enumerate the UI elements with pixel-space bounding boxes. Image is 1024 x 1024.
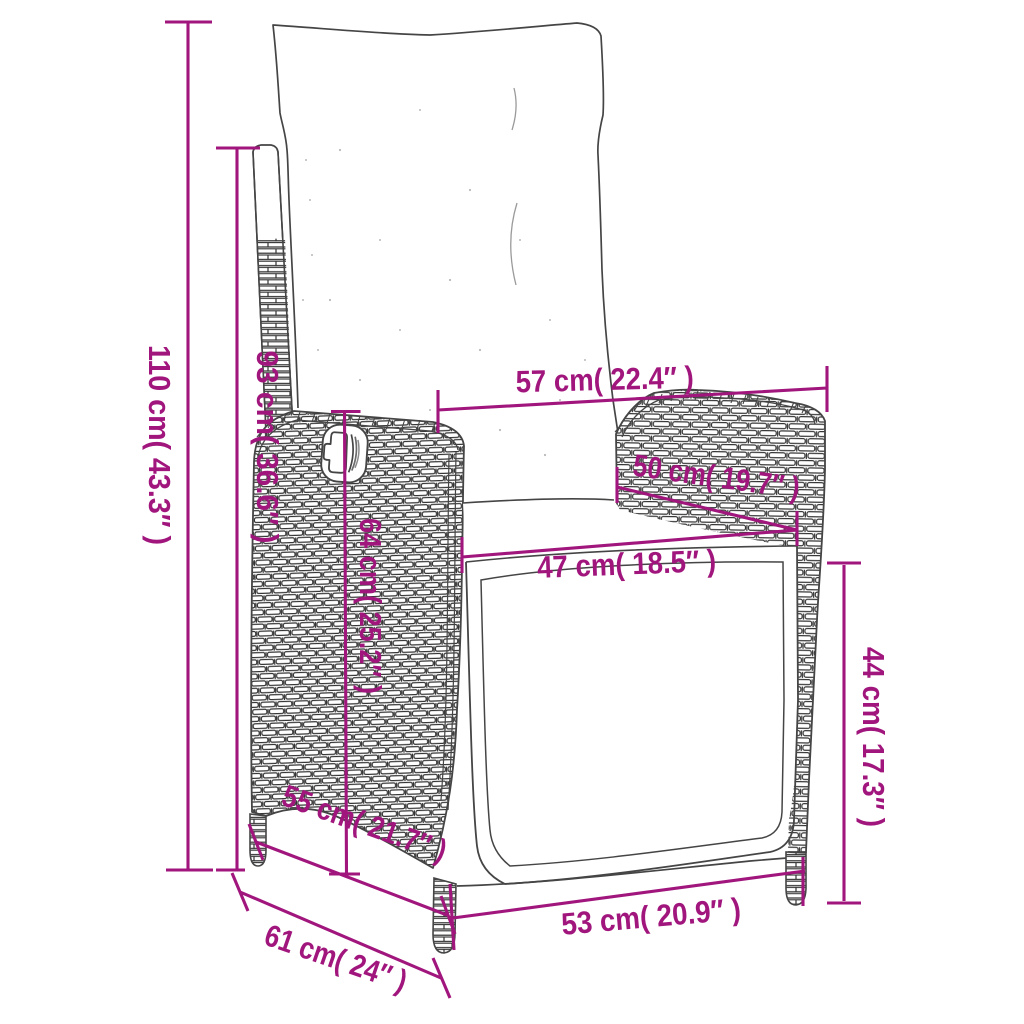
svg-text:47 cm( 18.5″ ): 47 cm( 18.5″ ) xyxy=(536,543,716,585)
svg-text:93 cm( 36.6″ ): 93 cm( 36.6″ ) xyxy=(250,351,285,544)
svg-text:110 cm( 43.3″ ): 110 cm( 43.3″ ) xyxy=(142,345,177,545)
svg-text:57 cm( 22.4″ ): 57 cm( 22.4″ ) xyxy=(515,360,694,400)
svg-text:64 cm( 25.2″ ): 64 cm( 25.2″ ) xyxy=(353,518,388,694)
svg-text:44 cm( 17.3″ ): 44 cm( 17.3″ ) xyxy=(856,647,891,827)
